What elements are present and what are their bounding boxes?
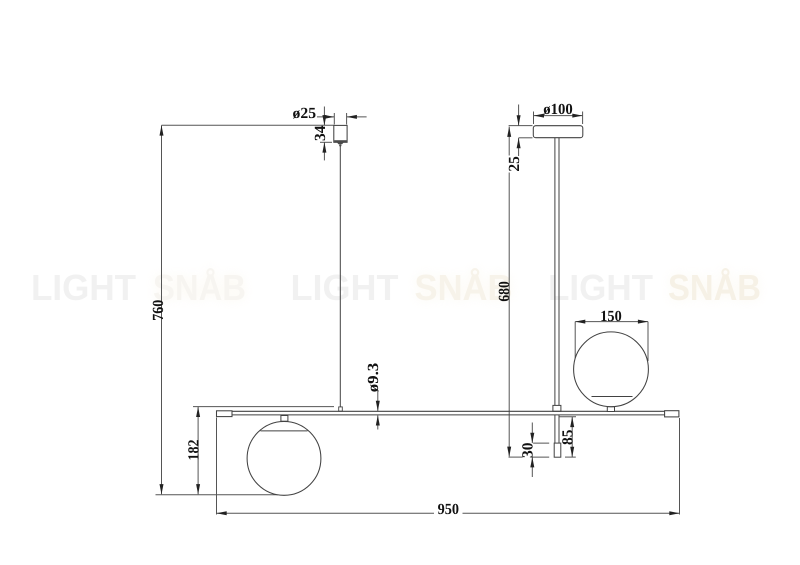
svg-text:950: 950 <box>438 501 460 518</box>
svg-text:182: 182 <box>185 439 202 460</box>
svg-text:ø25: ø25 <box>293 105 317 122</box>
svg-text:85: 85 <box>560 429 577 445</box>
svg-text:34: 34 <box>312 125 329 141</box>
svg-text:150: 150 <box>600 308 622 325</box>
svg-text:LIGHT: LIGHT <box>31 267 136 308</box>
svg-text:LIGHT: LIGHT <box>291 267 399 308</box>
svg-text:SNÅB: SNÅB <box>668 267 761 308</box>
svg-text:30: 30 <box>520 442 537 458</box>
svg-text:ø100: ø100 <box>543 101 573 118</box>
svg-text:25: 25 <box>506 156 523 172</box>
svg-text:LIGHT: LIGHT <box>548 267 653 308</box>
svg-text:ø9.3: ø9.3 <box>365 362 382 392</box>
svg-text:760: 760 <box>150 300 167 321</box>
svg-text:680: 680 <box>496 281 513 302</box>
